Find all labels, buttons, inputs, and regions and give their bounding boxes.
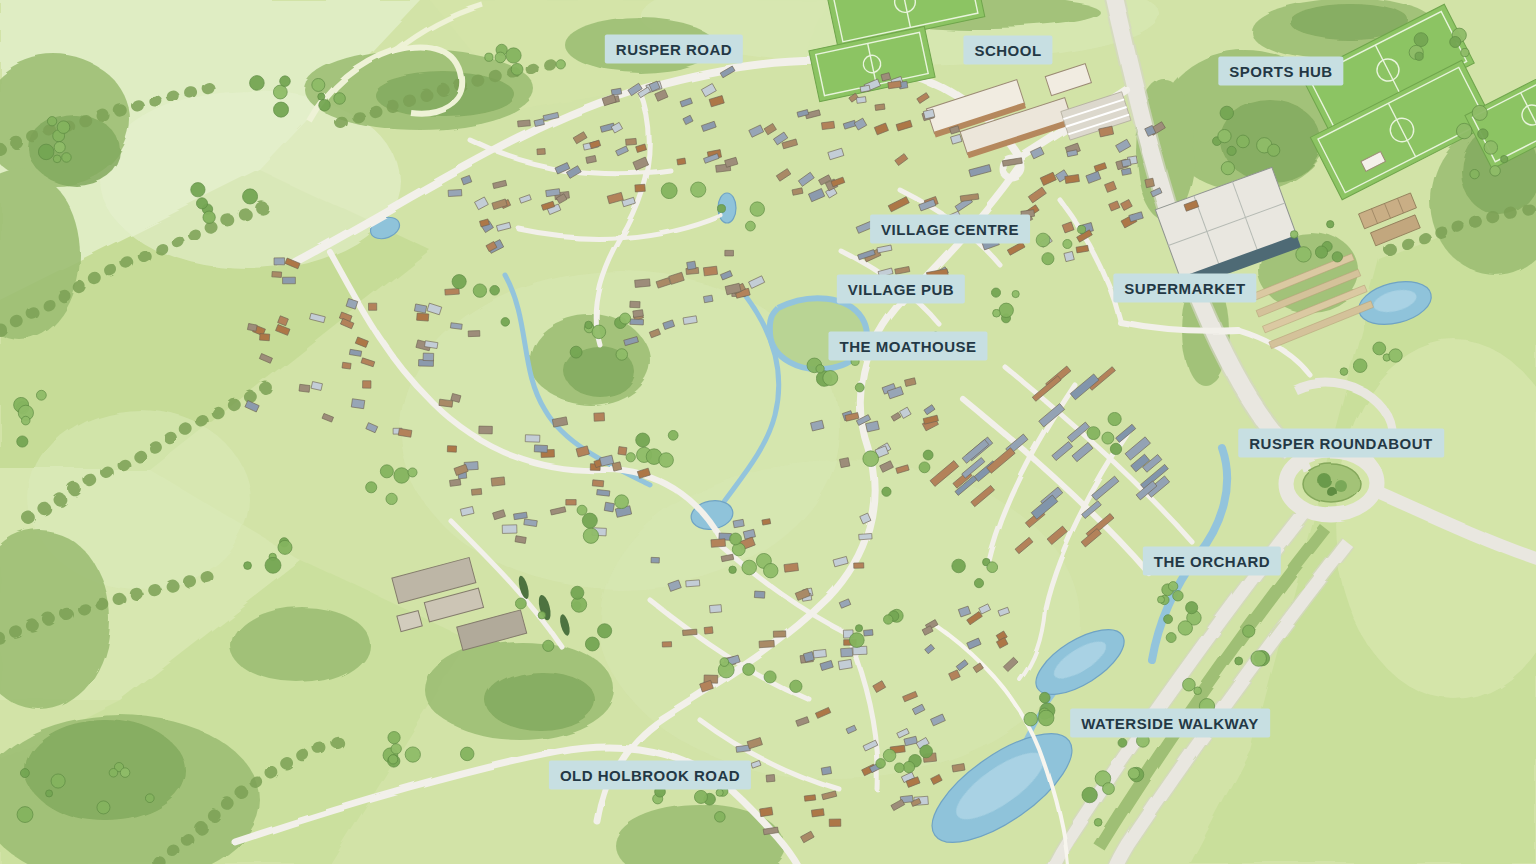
- map-label-waterside-walkway[interactable]: WATERSIDE WALKWAY: [1070, 709, 1270, 738]
- masterplan-map: RUSPER ROADSCHOOLSPORTS HUBVILLAGE CENTR…: [0, 0, 1536, 864]
- map-label-school[interactable]: SCHOOL: [963, 36, 1052, 65]
- map-label-old-holbrook-road[interactable]: OLD HOLBROOK ROAD: [549, 761, 751, 790]
- map-label-village-centre[interactable]: VILLAGE CENTRE: [870, 215, 1030, 244]
- map-label-the-orchard[interactable]: THE ORCHARD: [1143, 547, 1281, 576]
- map-label-rusper-road[interactable]: RUSPER ROAD: [605, 35, 743, 64]
- map-label-village-pub[interactable]: VILLAGE PUB: [837, 275, 965, 304]
- map-label-sports-hub[interactable]: SPORTS HUB: [1218, 57, 1343, 86]
- map-label-the-moathouse[interactable]: THE MOATHOUSE: [828, 332, 987, 361]
- map-label-supermarket[interactable]: SUPERMARKET: [1113, 274, 1256, 303]
- map-label-rusper-roundabout[interactable]: RUSPER ROUNDABOUT: [1238, 429, 1444, 458]
